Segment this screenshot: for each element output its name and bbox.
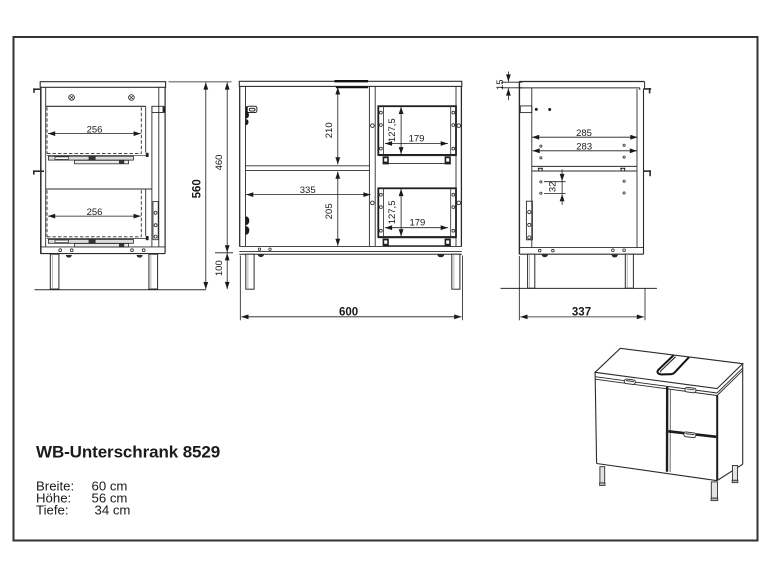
svg-text:179: 179 <box>409 134 425 145</box>
svg-text:127,5: 127,5 <box>387 201 398 225</box>
svg-text:283: 283 <box>576 142 592 153</box>
svg-text:285: 285 <box>576 128 592 139</box>
svg-text:256: 256 <box>87 207 103 218</box>
svg-text:337: 337 <box>572 306 591 318</box>
svg-text:205: 205 <box>324 203 335 219</box>
svg-text:256: 256 <box>87 124 103 135</box>
svg-text:34 cm: 34 cm <box>95 503 131 518</box>
svg-text:100: 100 <box>214 260 225 276</box>
svg-text:15: 15 <box>495 80 506 91</box>
svg-text:WB-Unterschrank 8529: WB-Unterschrank 8529 <box>36 443 220 462</box>
svg-text:179: 179 <box>409 218 425 229</box>
svg-text:335: 335 <box>300 185 316 196</box>
svg-text:Tiefe:: Tiefe: <box>36 503 69 518</box>
svg-text:560: 560 <box>192 179 204 198</box>
svg-text:460: 460 <box>214 155 225 171</box>
svg-text:32: 32 <box>547 182 558 193</box>
svg-text:210: 210 <box>324 122 335 138</box>
svg-text:600: 600 <box>339 306 358 318</box>
svg-text:127,5: 127,5 <box>387 118 398 142</box>
